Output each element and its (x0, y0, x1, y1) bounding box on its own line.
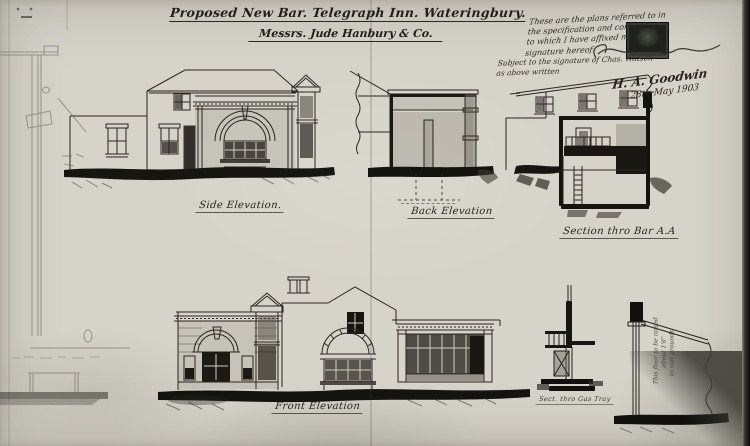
pencil-marks-topleft (0, 0, 120, 42)
gas-tray-label: Sect. thro Gas Tray (535, 395, 614, 405)
pencil-post-sketch (0, 36, 130, 416)
architectural-drawing-sheet: Proposed New Bar. Telegraph Inn. Waterin… (0, 0, 750, 446)
section-thro-bar-drawing (498, 66, 676, 232)
fold-crease (8, 0, 10, 446)
scan-corner-shadow (630, 351, 750, 446)
scale-bar (401, 203, 455, 204)
fold-crease (370, 0, 372, 446)
scan-edge (742, 0, 750, 446)
sheet-title: Proposed New Bar. Telegraph Inn. Waterin… (169, 5, 526, 22)
side-elevation-label: Side Elevation. (195, 200, 285, 213)
title-block: Proposed New Bar. Telegraph Inn. Waterin… (170, 2, 522, 42)
front-elevation-drawing (158, 276, 530, 412)
sheet-subtitle: Messrs. Jude Hanbury & Co. (249, 27, 444, 42)
front-elevation-label: Front Elevation (271, 401, 363, 414)
back-elevation-drawing (338, 52, 500, 222)
section-label: Section thro Bar A.A (559, 226, 679, 239)
back-elevation-label: Back Elevation (407, 206, 496, 219)
